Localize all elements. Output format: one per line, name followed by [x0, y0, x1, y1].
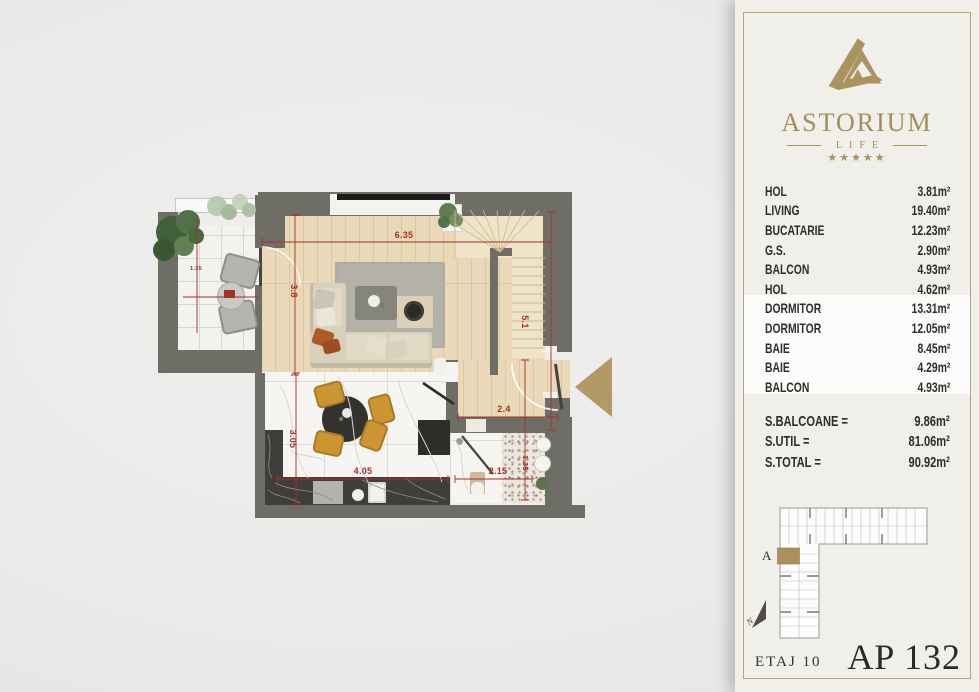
wall-balcony-divider-upper [255, 195, 262, 248]
room-area: 4.29m² [917, 359, 950, 375]
dimension-label: 3.05 [288, 424, 298, 454]
astorium-logo-icon [828, 36, 886, 102]
room-row: HOL3.81m² [765, 181, 950, 201]
room-row: DORMITOR13.31m² [765, 299, 950, 319]
floor-item [434, 358, 446, 376]
dining-table-decor [342, 408, 352, 418]
rule-right [893, 145, 927, 146]
total-label: S.UTIL = [765, 433, 810, 450]
entrance-arrow-icon [575, 357, 612, 417]
dimension-label: 4.05 [346, 466, 380, 476]
total-label: S.TOTAL = [765, 454, 821, 471]
dimension-label: 5.1 [520, 309, 530, 335]
side-table-tray [404, 301, 424, 321]
wall-hall-bath [446, 417, 572, 433]
room-label: HOL [765, 183, 787, 199]
brochure-sheet: 6.35 3.8 5.1 2.4 3.05 4.05 2.15 1.35 1.3… [0, 0, 979, 692]
room-label: G.S. [765, 242, 786, 258]
cooktop [352, 489, 364, 501]
total-value: 81.06m² [909, 433, 950, 450]
dimension-label: 3.8 [289, 278, 299, 304]
kitchen-tall-cabinet [265, 430, 283, 480]
planter-box [442, 204, 462, 232]
rule-left [787, 145, 821, 146]
dimension-label: 6.35 [386, 230, 422, 240]
room-label: BAIE [765, 340, 790, 356]
wall-bath-right [550, 433, 572, 505]
room-area: 3.81m² [917, 183, 950, 199]
brand-subtitle-row: LIFE [735, 140, 979, 151]
total-row: S.BALCOANE =9.86m² [765, 411, 950, 432]
stairs-flight-floor [512, 248, 545, 358]
room-row: LIVING19.40m² [765, 201, 950, 221]
building-key-plan [777, 506, 929, 640]
room-row: BAIE4.29m² [765, 357, 950, 377]
room-area: 8.45m² [917, 340, 950, 356]
wall-kitchen-left [255, 373, 265, 505]
toilet [534, 455, 551, 472]
block-label: A [762, 548, 771, 564]
balcony-railing [175, 198, 262, 213]
wall-column-left [262, 192, 285, 248]
room-label: LIVING [765, 202, 800, 218]
room-row: BUCATARIE12.23m² [765, 220, 950, 240]
floorplan: 6.35 3.8 5.1 2.4 3.05 4.05 2.15 1.35 1.3… [150, 190, 620, 520]
room-row: HOL4.62m² [765, 279, 950, 299]
total-row: S.TOTAL =90.92m² [765, 452, 950, 473]
bath-plant [536, 477, 549, 490]
dimension-label: 1.35 [520, 450, 530, 476]
entry-door-jamb-top [543, 346, 557, 352]
room-label: BUCATARIE [765, 222, 824, 238]
room-list: HOL3.81m² LIVING19.40m² BUCATARIE12.23m²… [765, 181, 950, 397]
kitchen-cabinet [313, 481, 343, 504]
room-row: DORMITOR12.05m² [765, 318, 950, 338]
brand-subtitle: LIFE [829, 140, 885, 151]
room-label: BALCON [765, 379, 809, 395]
room-area: 19.40m² [911, 202, 950, 218]
wall-balcony-divider-lower [255, 285, 262, 374]
north-compass-icon: N [745, 597, 773, 631]
room-area: 12.05m² [911, 320, 950, 336]
info-panel: ASTORIUM LIFE ★★★★★ HOL3.81m² LIVING19.4… [735, 0, 979, 692]
entry-door-jamb-bottom [543, 392, 557, 398]
room-row: BALCON4.93m² [765, 259, 950, 279]
total-value: 9.86m² [915, 413, 950, 430]
balcony-table-decor [224, 290, 235, 298]
apartment-highlight [778, 548, 800, 564]
counter-lamp [293, 479, 304, 490]
room-area: 4.93m² [917, 261, 950, 277]
stairs-spine-wall [490, 248, 498, 375]
room-area: 4.93m² [917, 379, 950, 395]
wall-balcony-left [158, 212, 178, 372]
room-label: BAIE [765, 359, 790, 375]
room-area: 12.23m² [911, 222, 950, 238]
wall-right-block [543, 192, 572, 352]
room-label: DORMITOR [765, 320, 821, 336]
dimension-label: 2.4 [490, 404, 518, 414]
dimension-label-small: 1.35 [186, 264, 206, 274]
room-label: BALCON [765, 261, 809, 277]
wall-bottom [255, 505, 585, 518]
brand-name: ASTORIUM [735, 108, 979, 138]
floor-label: ETAJ 10 [755, 654, 822, 671]
apartment-number: AP 132 [847, 636, 961, 678]
pillow [365, 335, 388, 355]
room-row: BALCON4.93m² [765, 377, 950, 397]
pillow [316, 307, 337, 328]
kitchen-appliance [418, 420, 450, 455]
tv [337, 194, 450, 200]
room-area: 13.31m² [911, 300, 950, 316]
total-label: S.BALCOANE = [765, 413, 848, 430]
hall-door-panel [446, 362, 458, 382]
room-label: HOL [765, 281, 787, 297]
room-label: DORMITOR [765, 300, 821, 316]
total-row: S.UTIL =81.06m² [765, 432, 950, 453]
kitchen-sink [368, 482, 386, 503]
bath-sink [536, 437, 551, 452]
room-area: 2.90m² [917, 242, 950, 258]
wall-balcony-bottom [158, 350, 258, 373]
room-row: BAIE8.45m² [765, 338, 950, 358]
coffee-table-plant [368, 295, 380, 307]
total-value: 90.92m² [909, 454, 950, 471]
totals-list: S.BALCOANE =9.86m² S.UTIL =81.06m² S.TOT… [765, 411, 950, 473]
room-row: G.S.2.90m² [765, 240, 950, 260]
room-area: 4.62m² [917, 281, 950, 297]
toilet-small [471, 482, 484, 496]
five-stars-icon: ★★★★★ [735, 151, 979, 164]
bathroom-door-opening [466, 419, 486, 432]
shower-head [456, 438, 463, 445]
dimension-label: 2.15 [483, 466, 513, 476]
